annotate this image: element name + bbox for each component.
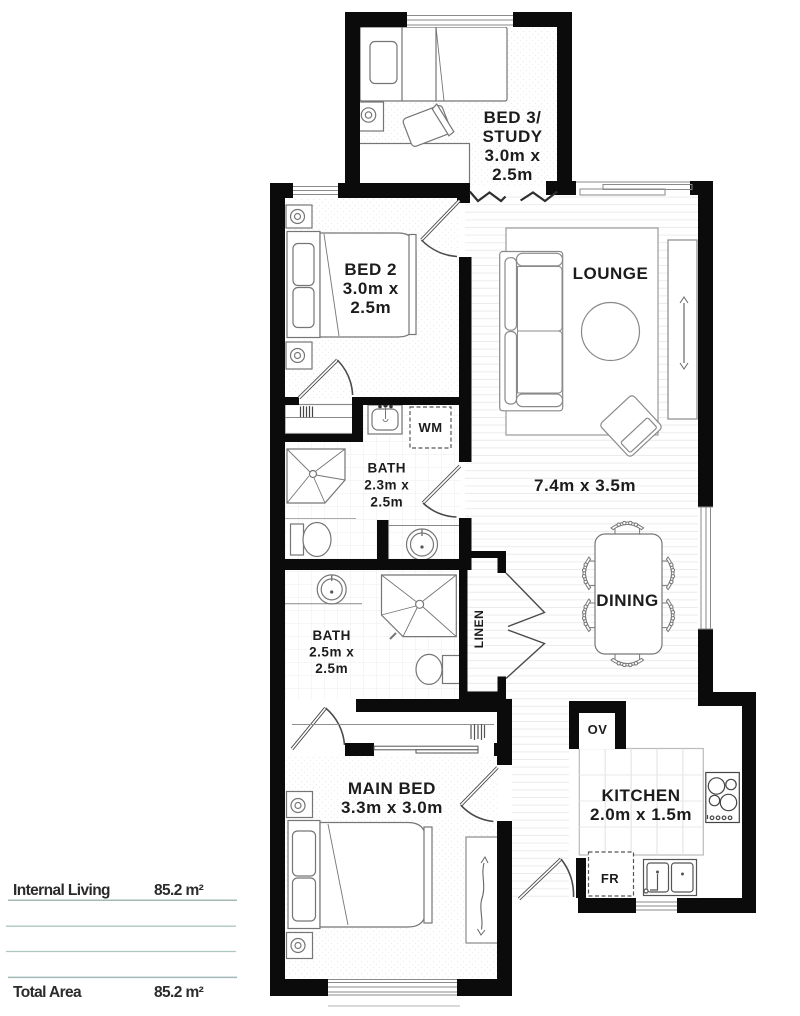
svg-text:STUDY: STUDY — [482, 127, 542, 146]
svg-text:2.5m: 2.5m — [492, 165, 533, 184]
svg-text:2.0m x 1.5m: 2.0m x 1.5m — [590, 805, 692, 824]
svg-text:BED 2: BED 2 — [344, 260, 397, 279]
svg-text:WM: WM — [418, 420, 442, 435]
svg-text:BATH: BATH — [368, 461, 407, 476]
svg-text:MAIN BED: MAIN BED — [348, 779, 436, 798]
svg-text:7.4m x 3.5m: 7.4m x 3.5m — [534, 476, 636, 495]
svg-text:85.2 m²: 85.2 m² — [154, 984, 204, 1001]
svg-text:3.3m x 3.0m: 3.3m x 3.0m — [341, 798, 443, 817]
svg-text:2.5m: 2.5m — [350, 298, 391, 317]
svg-text:LINEN: LINEN — [472, 610, 486, 649]
svg-text:LOUNGE: LOUNGE — [573, 264, 649, 283]
svg-text:3.0m x: 3.0m x — [343, 279, 399, 298]
svg-text:2.5m x: 2.5m x — [309, 645, 354, 660]
svg-text:DINING: DINING — [596, 591, 659, 610]
svg-text:2.5m: 2.5m — [315, 661, 348, 676]
svg-text:2.3m x: 2.3m x — [364, 478, 409, 493]
svg-text:Internal Living: Internal Living — [13, 882, 110, 899]
svg-text:85.2 m²: 85.2 m² — [154, 882, 204, 899]
svg-text:3.0m x: 3.0m x — [485, 146, 541, 165]
svg-text:OV: OV — [588, 722, 608, 737]
svg-text:BATH: BATH — [312, 628, 351, 643]
svg-text:FR: FR — [601, 871, 619, 886]
svg-text:Total Area: Total Area — [13, 984, 82, 1001]
svg-text:KITCHEN: KITCHEN — [601, 786, 680, 805]
svg-text:2.5m: 2.5m — [370, 495, 403, 510]
svg-text:BED 3/: BED 3/ — [484, 108, 542, 127]
